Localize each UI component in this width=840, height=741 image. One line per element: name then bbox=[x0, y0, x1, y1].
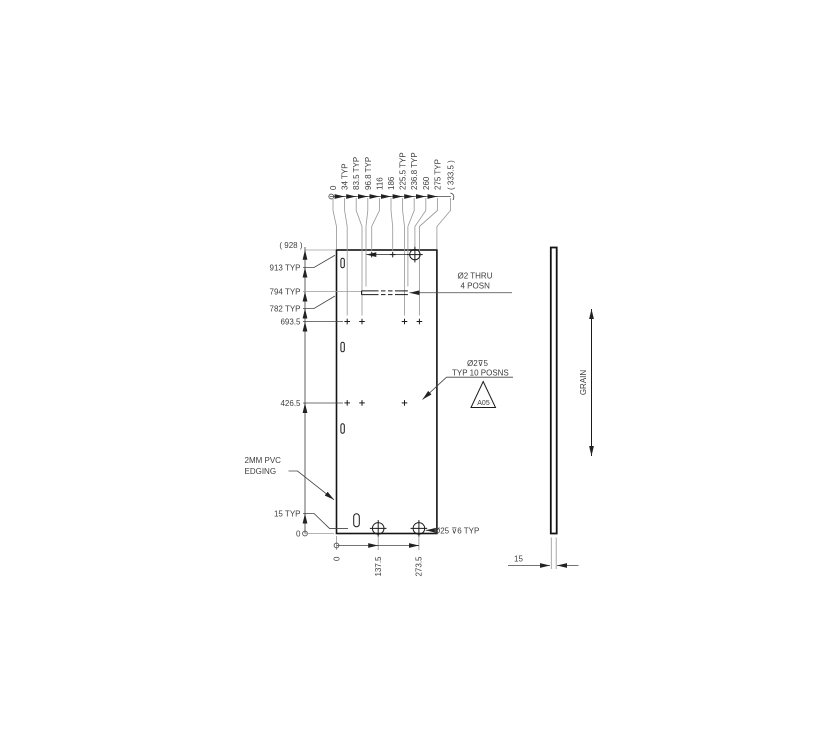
edge-view-outline bbox=[551, 248, 557, 534]
top-dim-labels: 0 34 TYP 83.5 TYP 96.8 TYP 116 186 225.5… bbox=[329, 152, 456, 190]
dim-label: 96.8 TYP bbox=[364, 157, 373, 190]
bottom-dimensions: 0 137.5 273.5 bbox=[332, 536, 423, 577]
dim-label: 15 TYP bbox=[274, 510, 301, 519]
edging-note-line1: 2MM PVC bbox=[245, 456, 282, 465]
dim-label: 693.5 bbox=[280, 318, 301, 327]
dim-label: 186 bbox=[387, 176, 396, 190]
dim-label: 273.5 bbox=[415, 556, 424, 577]
dim-label: ( 928 ) bbox=[279, 241, 302, 250]
edging-leader bbox=[289, 471, 335, 500]
dim-label: 275 TYP bbox=[433, 159, 442, 190]
dim-label: 426.5 bbox=[280, 399, 301, 408]
dim-label: 137.5 bbox=[374, 556, 383, 577]
thickness-dim-label: 15 bbox=[514, 555, 523, 564]
dim-label: 225.5 TYP bbox=[399, 152, 408, 190]
blind-hole-note-line1: Ø2⊽5 bbox=[467, 359, 489, 368]
bottom-dim-labels: 0 137.5 273.5 bbox=[332, 556, 423, 577]
dim-label: 34 TYP bbox=[341, 163, 350, 190]
edging-note-line2: EDGING bbox=[245, 467, 277, 476]
panel-edge-view: GRAIN 15 bbox=[508, 248, 592, 570]
dim-label: 782 TYP bbox=[270, 305, 301, 314]
blind-hole-note-line2: TYP 10 POSNS bbox=[452, 369, 509, 378]
left-dim-labels: ( 928 ) 913 TYP 794 TYP 782 TYP 693.5 42… bbox=[270, 241, 303, 539]
dim-label: 116 bbox=[375, 177, 384, 190]
big-hole-note: Ø25 ⊽6 TYP bbox=[434, 527, 479, 536]
dim-label: 236.8 TYP bbox=[410, 152, 419, 190]
drawing-canvas: 0 34 TYP 83.5 TYP 96.8 TYP 116 186 225.5… bbox=[0, 0, 840, 741]
thru-hole-note-line2: 4 POSN bbox=[461, 282, 491, 291]
drawing-sheet: 0 34 TYP 83.5 TYP 96.8 TYP 116 186 225.5… bbox=[0, 0, 840, 741]
dim-label: ( 333.5 ) bbox=[447, 160, 456, 190]
flag-label: A05 bbox=[477, 400, 490, 407]
grain-label: GRAIN bbox=[579, 370, 588, 396]
dim-label: 794 TYP bbox=[270, 288, 301, 297]
thru-hole-note-line1: Ø2 THRU bbox=[458, 272, 493, 281]
dim-label: 0 bbox=[296, 530, 301, 539]
dim-label: 83.5 TYP bbox=[352, 157, 361, 190]
dim-label: 0 bbox=[329, 185, 338, 190]
dim-label: 913 TYP bbox=[270, 264, 301, 273]
dim-label: 0 bbox=[332, 556, 341, 561]
dim-label: 260 bbox=[422, 176, 431, 190]
